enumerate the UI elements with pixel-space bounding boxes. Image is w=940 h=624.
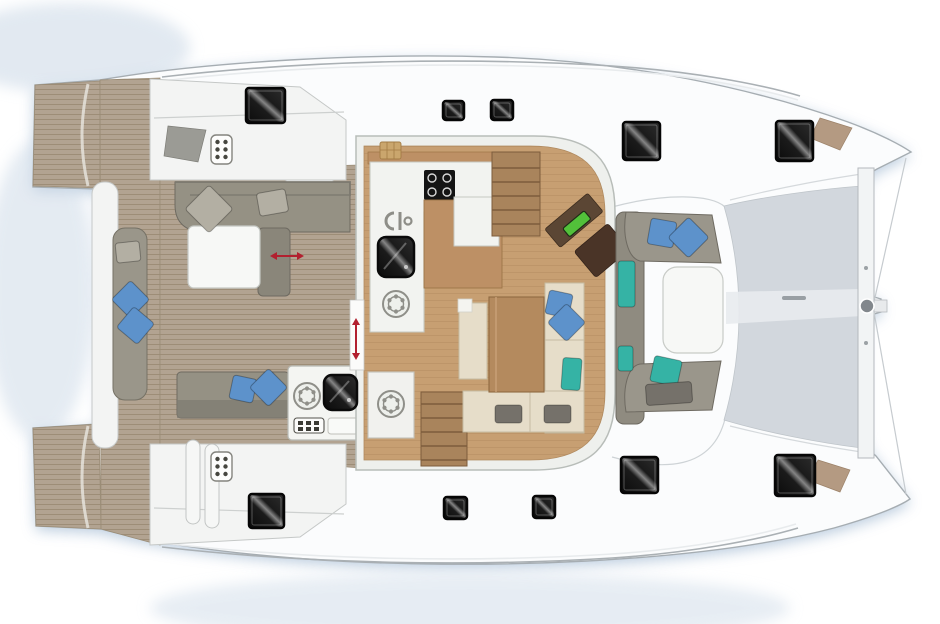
beam-fitting — [864, 341, 868, 345]
deck-hatch-stb-aft — [246, 88, 285, 123]
ring-burner-icon — [378, 391, 404, 417]
deck-hatch-port-fwd — [621, 457, 658, 493]
deck-hatch-stb-bow — [776, 121, 813, 161]
sink-icon — [324, 375, 357, 410]
pillow-gray_dark — [645, 381, 692, 405]
swim-platform-starboard — [33, 81, 100, 188]
floorplan-canvas — [0, 0, 940, 624]
wet-bar-drawer — [328, 418, 358, 434]
deck-hatch-port-aft — [249, 494, 284, 528]
pillow-gray_dark — [495, 405, 522, 423]
deck-hatch-stb-fwd — [623, 122, 660, 160]
pillow-gray_light — [256, 189, 289, 217]
davit-pillar — [186, 440, 200, 524]
sink-icon — [378, 237, 414, 277]
bridle-cleat — [782, 296, 806, 300]
pillow-teal — [618, 261, 635, 307]
dining-table — [489, 297, 544, 392]
cockpit-sofa-backrest — [258, 228, 290, 296]
stairs-starboard-hull — [492, 152, 540, 236]
ring-burner-icon — [383, 291, 409, 317]
ring-burner-icon — [294, 383, 320, 409]
vent-grid-icon — [211, 452, 232, 481]
vent-grid-icon — [211, 135, 232, 164]
icebox-icon — [380, 142, 401, 159]
pillow-gray_dark — [544, 405, 571, 423]
forward-cockpit-table — [663, 267, 723, 353]
deck-hatch-port-bow — [775, 455, 815, 496]
cooktop-icon — [424, 170, 455, 200]
trampoline — [724, 186, 862, 448]
pillow-teal — [618, 346, 633, 371]
swim-platform-port — [33, 424, 101, 529]
stairs-port-hull — [421, 392, 467, 466]
pillow-gray_light — [115, 241, 141, 263]
floorplan-image — [0, 0, 940, 624]
bowsprit-ring-icon — [860, 299, 874, 313]
beam-fitting — [864, 266, 868, 270]
cockpit-table — [188, 226, 260, 288]
dining-bench-left — [459, 303, 487, 379]
pillow-teal — [561, 357, 582, 390]
